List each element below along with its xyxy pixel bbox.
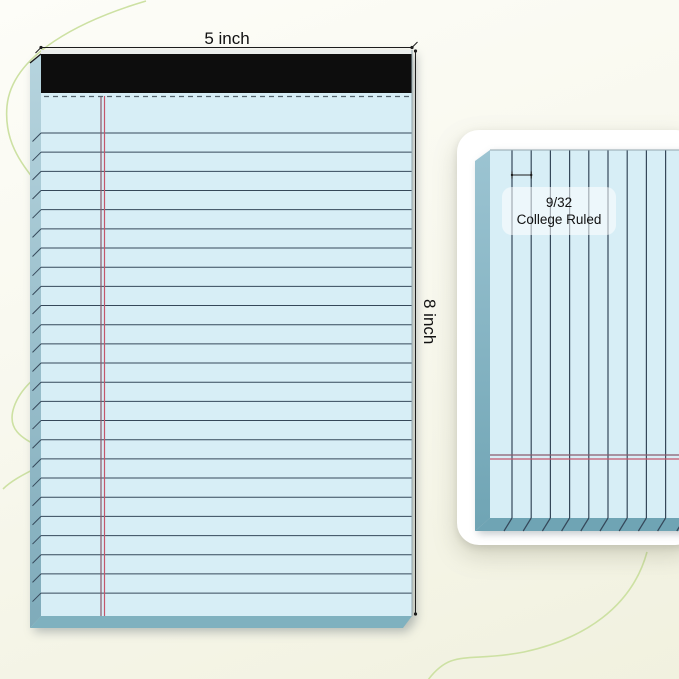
height-dimension-line: [414, 49, 417, 615]
detail-card: 9/32 College Ruled: [457, 130, 679, 545]
product-image: 5 inch 8 inch: [0, 0, 679, 679]
notepad-front: [30, 50, 412, 628]
height-dimension-label: 8 inch: [419, 299, 439, 373]
detail-left-edge: [475, 150, 490, 531]
width-dimension-label: 5 inch: [168, 30, 286, 48]
notepad-bottom-edge: [30, 616, 412, 628]
ruling-label: 9/32 College Ruled: [502, 187, 616, 235]
notepad-top-edge: [41, 50, 412, 54]
notepad-left-edge: [30, 54, 41, 628]
ruling-label-type: College Ruled: [517, 211, 602, 228]
ruling-label-size: 9/32: [546, 194, 572, 211]
binding-strip: [41, 54, 412, 93]
